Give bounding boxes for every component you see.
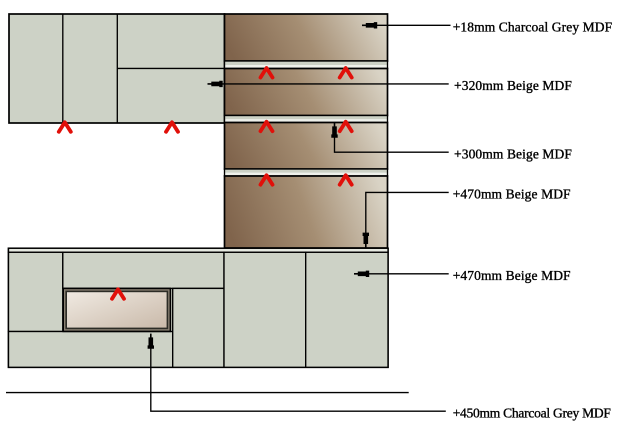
svg-text:+18mm Charcoal Grey MDF: +18mm Charcoal Grey MDF bbox=[453, 20, 613, 35]
svg-text:+450mm Charcoal Grey MDF: +450mm Charcoal Grey MDF bbox=[453, 406, 612, 421]
svg-text:+300mm Beige MDF: +300mm Beige MDF bbox=[454, 147, 572, 162]
svg-text:+470mm Beige MDF: +470mm Beige MDF bbox=[453, 268, 571, 283]
svg-text:+320mm Beige MDF: +320mm Beige MDF bbox=[454, 78, 572, 93]
svg-text:+470mm Beige MDF: +470mm Beige MDF bbox=[453, 187, 571, 202]
